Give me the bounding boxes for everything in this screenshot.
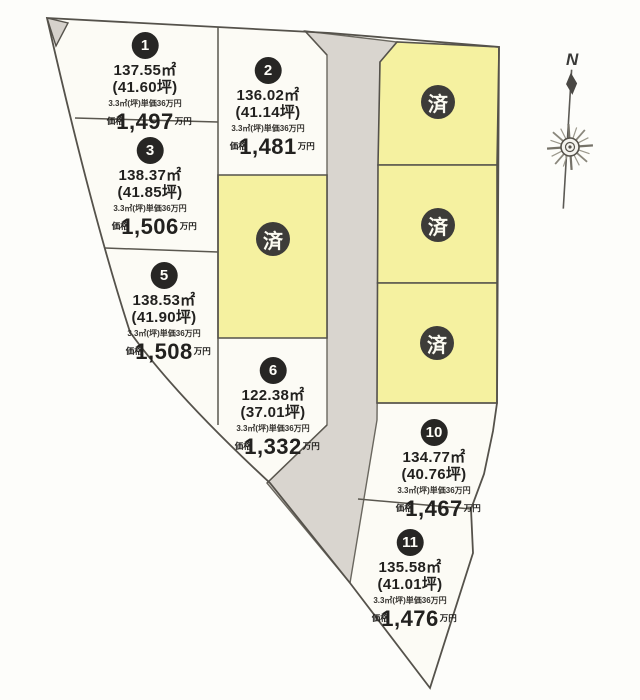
plot-10-area: 134.77㎡	[403, 449, 466, 466]
plot-2-tsubo: (41.14坪)	[236, 104, 301, 121]
price-suffix: 万円	[194, 347, 203, 356]
plot-11-label: 11 135.58㎡ (41.01坪) 3.3㎡(坪)単価36万円 価格 1,4…	[372, 529, 449, 631]
price-prefix: 価格	[126, 347, 135, 356]
plot-2-number-badge: 2	[255, 57, 282, 84]
plot-5-unit-price: 3.3㎡(坪)単価36万円	[127, 329, 200, 338]
plot-2-unit-price: 3.3㎡(坪)単価36万円	[231, 124, 304, 133]
plot-5-label: 5 138.53㎡ (41.90坪) 3.3㎡(坪)単価36万円 価格 1,50…	[126, 262, 203, 364]
sold-badge-center: 済	[256, 222, 290, 256]
plot-1-price: 価格 1,497 万円	[107, 109, 184, 134]
plot-1-area: 137.55㎡	[114, 62, 177, 79]
price-suffix: 万円	[464, 504, 473, 513]
plot-6-tsubo: (37.01坪)	[241, 404, 306, 421]
price-prefix: 価格	[230, 142, 239, 151]
price-suffix: 万円	[440, 614, 449, 623]
plot-10-tsubo: (40.76坪)	[402, 466, 467, 483]
plot-6-price: 価格 1,332 万円	[235, 434, 312, 459]
compass-north-label: N	[566, 50, 578, 70]
price-suffix: 万円	[175, 117, 184, 126]
plot-3-label: 3 138.37㎡ (41.85坪) 3.3㎡(坪)単価36万円 価格 1,50…	[112, 137, 189, 239]
plot-11-area: 135.58㎡	[379, 559, 442, 576]
plot-6-area: 122.38㎡	[242, 387, 305, 404]
compass-rose	[542, 69, 598, 210]
plot-5-number-badge: 5	[151, 262, 178, 289]
price-prefix: 価格	[396, 504, 405, 513]
plot-2-label: 2 136.02㎡ (41.14坪) 3.3㎡(坪)単価36万円 価格 1,48…	[230, 57, 307, 159]
plot-2-area: 136.02㎡	[237, 87, 300, 104]
plot-11-price: 価格 1,476 万円	[372, 606, 449, 631]
price-value: 1,506	[121, 214, 179, 239]
plot-11-unit-price: 3.3㎡(坪)単価36万円	[373, 596, 446, 605]
plot-6-number-badge: 6	[260, 357, 287, 384]
plot-1-number-badge: 1	[132, 32, 159, 59]
price-suffix: 万円	[180, 222, 189, 231]
price-value: 1,497	[116, 109, 174, 134]
price-suffix: 万円	[303, 442, 312, 451]
price-prefix: 価格	[107, 117, 116, 126]
plot-3-price: 価格 1,506 万円	[112, 214, 189, 239]
price-value: 1,476	[381, 606, 439, 631]
plot-1-label: 1 137.55㎡ (41.60坪) 3.3㎡(坪)単価36万円 価格 1,49…	[107, 32, 184, 134]
plot-11-tsubo: (41.01坪)	[378, 576, 443, 593]
plot-5-tsubo: (41.90坪)	[132, 309, 197, 326]
plot-2-price: 価格 1,481 万円	[230, 134, 307, 159]
price-suffix: 万円	[298, 142, 307, 151]
plot-10-number-badge: 10	[421, 419, 448, 446]
sold-badge-right-bottom: 済	[420, 326, 454, 360]
price-value: 1,508	[135, 339, 193, 364]
price-prefix: 価格	[372, 614, 381, 623]
subdivision-map: N 1 137.55㎡ (41.60坪) 3.3㎡(坪)単価36万円 価格 1,…	[0, 0, 640, 700]
plot-map-drawing	[0, 0, 640, 700]
price-value: 1,332	[244, 434, 302, 459]
plot-10-unit-price: 3.3㎡(坪)単価36万円	[397, 486, 470, 495]
plot-6-unit-price: 3.3㎡(坪)単価36万円	[236, 424, 309, 433]
sold-plot-center	[218, 175, 327, 338]
plot-5-price: 価格 1,508 万円	[126, 339, 203, 364]
price-prefix: 価格	[235, 442, 244, 451]
sold-badge-right-top: 済	[421, 85, 455, 119]
sold-badge-right-middle: 済	[421, 208, 455, 242]
plot-10-price: 価格 1,467 万円	[396, 496, 473, 521]
price-prefix: 価格	[112, 222, 121, 231]
plot-11-number-badge: 11	[397, 529, 424, 556]
price-value: 1,481	[239, 134, 297, 159]
plot-1-unit-price: 3.3㎡(坪)単価36万円	[108, 99, 181, 108]
plot-6-label: 6 122.38㎡ (37.01坪) 3.3㎡(坪)単価36万円 価格 1,33…	[235, 357, 312, 459]
plot-5-area: 138.53㎡	[133, 292, 196, 309]
plot-1-tsubo: (41.60坪)	[113, 79, 178, 96]
plot-3-number-badge: 3	[137, 137, 164, 164]
plot-3-unit-price: 3.3㎡(坪)単価36万円	[113, 204, 186, 213]
price-value: 1,467	[405, 496, 463, 521]
plot-3-area: 138.37㎡	[119, 167, 182, 184]
plot-3-tsubo: (41.85坪)	[118, 184, 183, 201]
plot-10-label: 10 134.77㎡ (40.76坪) 3.3㎡(坪)単価36万円 価格 1,4…	[396, 419, 473, 521]
